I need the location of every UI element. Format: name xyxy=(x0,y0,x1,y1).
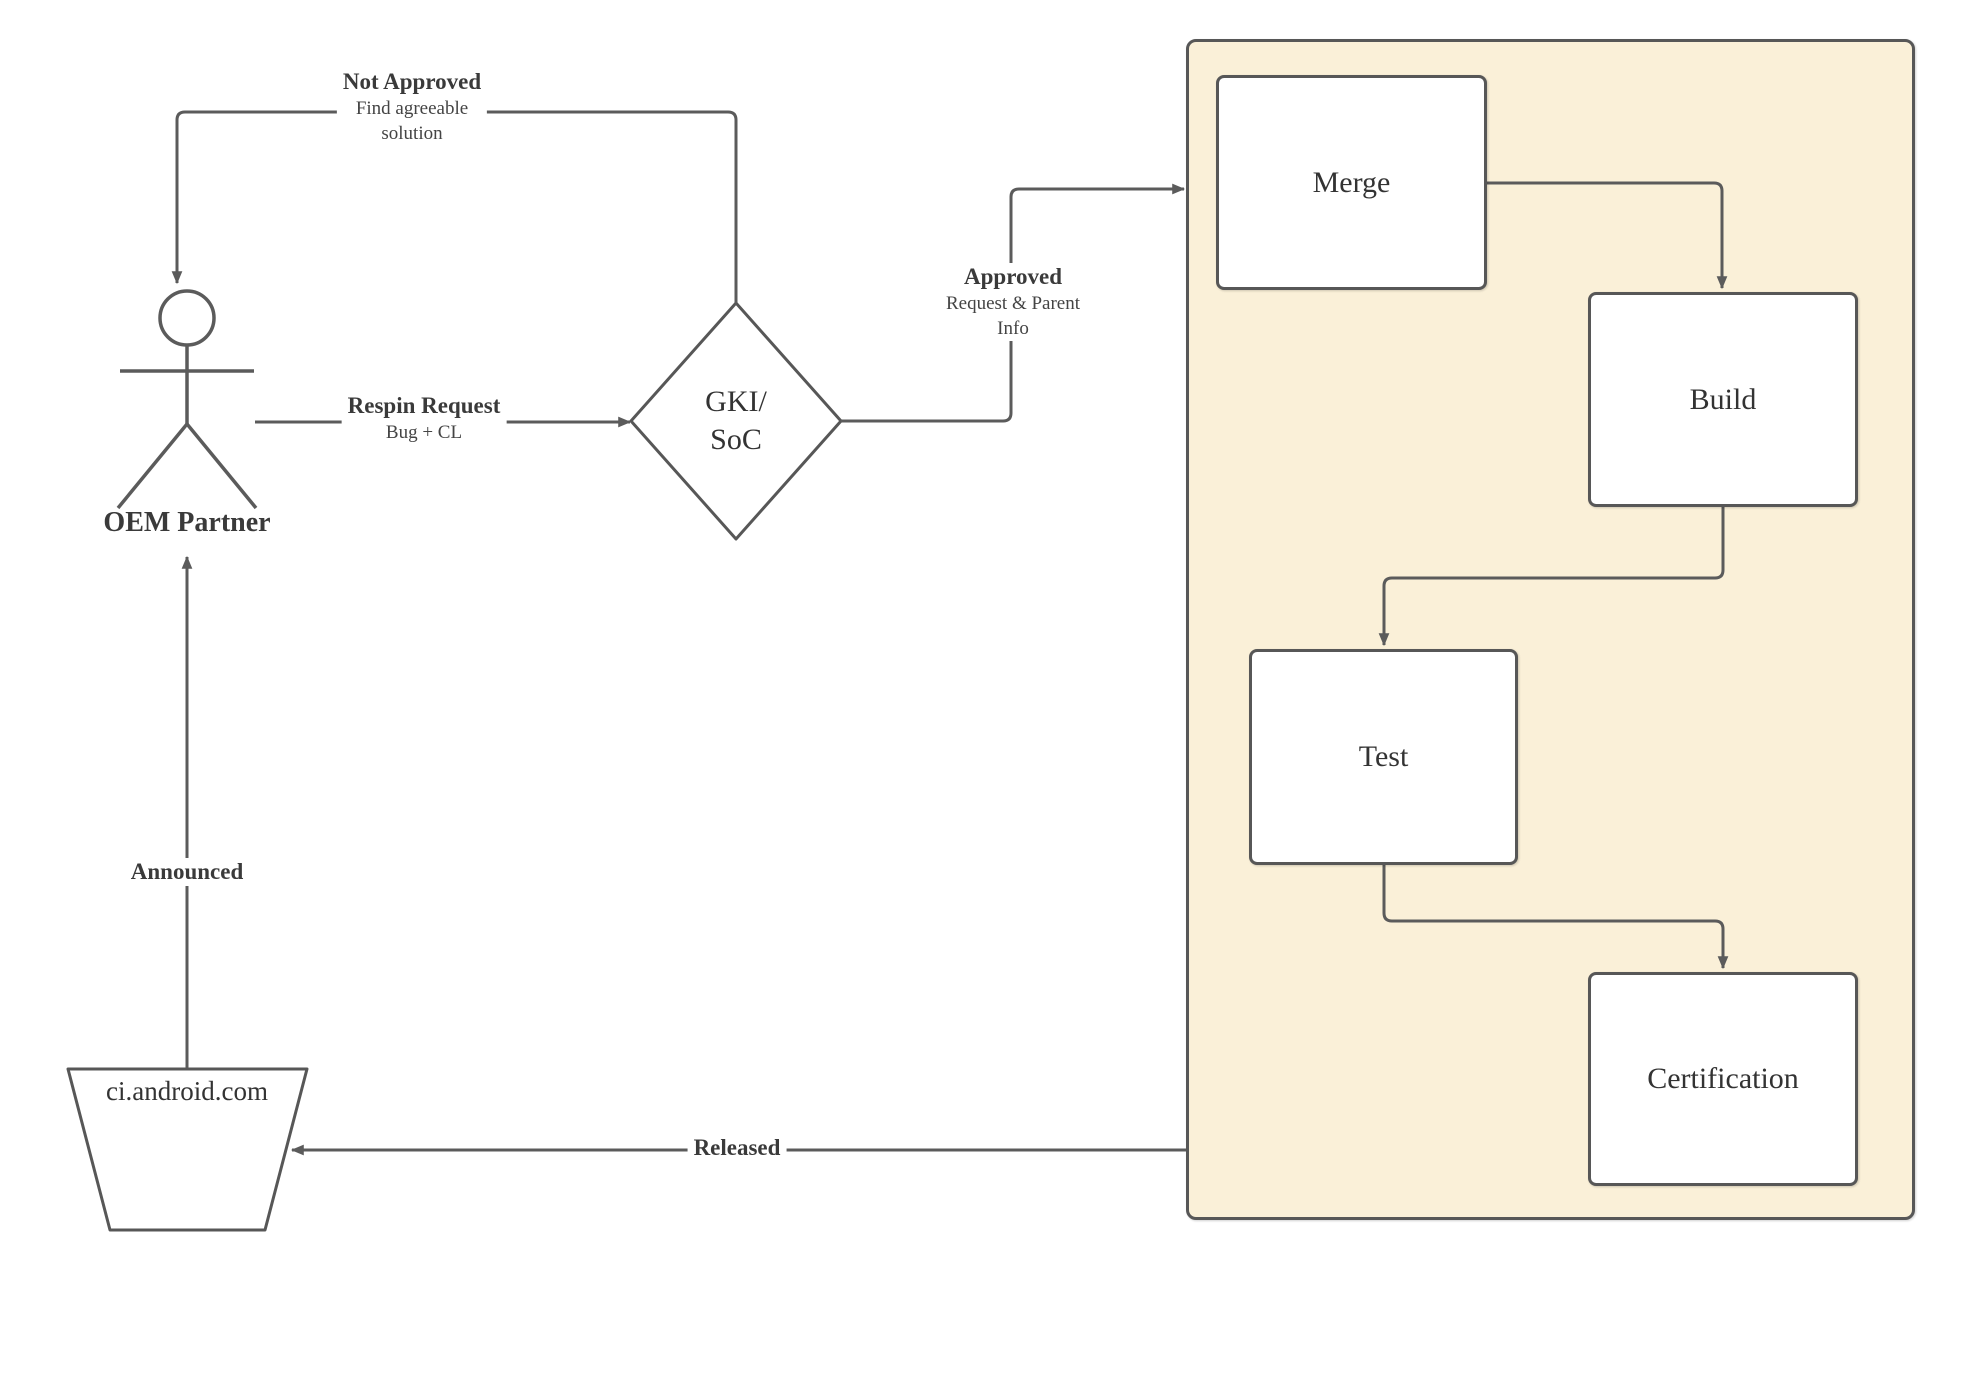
not-approved-subtitle-line1: Find agreeable xyxy=(343,96,481,121)
oem-partner-label: OEM Partner xyxy=(103,507,270,539)
not-approved-edge-label: Not Approved Find agreeable solution xyxy=(337,68,487,146)
approved-edge-label: Approved Request & Parent Info xyxy=(940,263,1086,341)
merge-to-build-arrow xyxy=(1487,183,1722,288)
respin-request-title: Respin Request xyxy=(348,392,501,420)
test-node-label: Test xyxy=(1359,740,1409,774)
gki-soc-decision-label: GKI/ SoC xyxy=(705,383,767,459)
approved-subtitle-line2: Info xyxy=(946,316,1080,341)
actor-legs xyxy=(118,424,256,508)
build-to-test-arrow xyxy=(1384,507,1723,645)
not-approved-subtitle-line2: solution xyxy=(343,121,481,146)
released-title: Released xyxy=(694,1134,781,1162)
oem-partner-actor-figure xyxy=(118,291,256,508)
gki-soc-label-line1: GKI/ xyxy=(705,383,767,421)
merge-node: Merge xyxy=(1216,75,1487,290)
build-node-label: Build xyxy=(1690,383,1757,417)
approved-subtitle-line1: Request & Parent xyxy=(946,291,1080,316)
gki-soc-label-line2: SoC xyxy=(705,421,767,459)
respin-request-subtitle: Bug + CL xyxy=(348,420,501,445)
respin-request-edge-label: Respin Request Bug + CL xyxy=(342,392,507,445)
released-edge-label: Released xyxy=(688,1134,787,1162)
approved-title: Approved xyxy=(946,263,1080,291)
ci-android-label: ci.android.com xyxy=(106,1076,268,1107)
announced-title: Announced xyxy=(131,858,243,886)
merge-node-label: Merge xyxy=(1313,166,1391,200)
build-node: Build xyxy=(1588,292,1858,507)
flow-diagram: Merge Build Test Certification GKI/ SoC … xyxy=(0,0,1966,1383)
certification-node: Certification xyxy=(1588,972,1858,1186)
test-node: Test xyxy=(1249,649,1518,865)
certification-node-label: Certification xyxy=(1647,1062,1799,1096)
actor-head xyxy=(160,291,214,345)
announced-edge-label: Announced xyxy=(125,858,249,886)
not-approved-title: Not Approved xyxy=(343,68,481,96)
test-to-certification-arrow xyxy=(1384,865,1723,968)
